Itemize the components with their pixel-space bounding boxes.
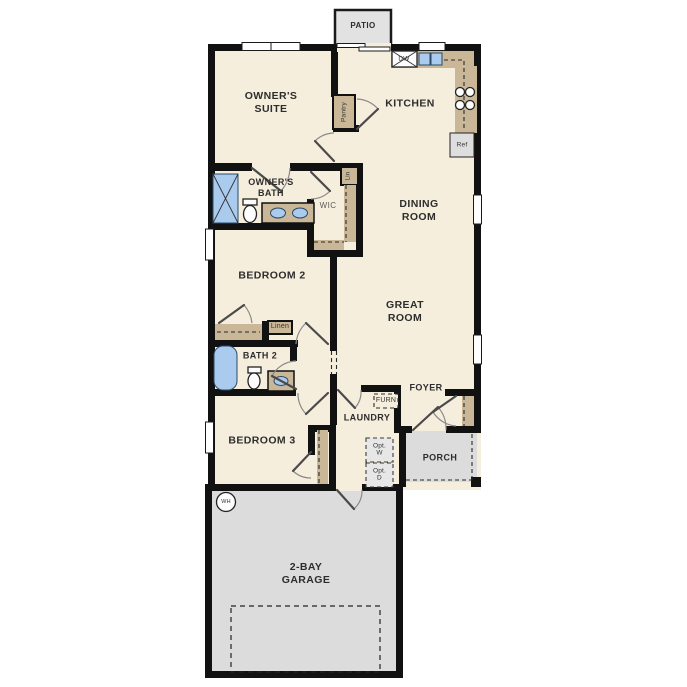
bathtub: [214, 346, 237, 390]
room-label-bedroom2: BEDROOM 2: [238, 269, 305, 282]
fixture-label-refrigerator: Ref: [457, 141, 468, 148]
fixture-label-opt-washer: Opt. W: [373, 443, 386, 458]
room-label-foyer: FOYER: [409, 382, 442, 393]
fixture-label-pantry: Pantry: [340, 102, 347, 122]
bath2-toilet: [248, 367, 261, 389]
dining-window: [474, 195, 482, 224]
patio-sliding-door: [337, 43, 391, 52]
bedroom3-closet-shelf: [317, 430, 328, 484]
room-label-bedroom3: BEDROOM 3: [228, 434, 295, 447]
room-label-garage: 2-BAY GARAGE: [282, 561, 331, 587]
fixture-label-lin: Lin: [346, 172, 353, 181]
fixture-label-water-heater: WH: [221, 499, 231, 505]
kitchen-window: [419, 43, 445, 51]
owners-suite-window-right: [271, 43, 300, 51]
room-label-patio: PATIO: [350, 21, 375, 31]
room-label-wic: WIC: [320, 201, 337, 211]
foyer-closet-shelf: [462, 396, 474, 426]
room-label-laundry: LAUNDRY: [344, 412, 390, 423]
room-label-dining: DINING ROOM: [399, 198, 438, 224]
room-label-kitchen: KITCHEN: [385, 97, 434, 110]
owners-shower: [213, 174, 238, 223]
fixture-label-linen: Linen: [271, 323, 289, 331]
bedroom3-window: [206, 422, 214, 453]
room-label-porch: PORCH: [423, 452, 458, 463]
room-label-owners-bath: OWNER'S BATH: [248, 177, 293, 200]
owners-suite-window-left: [242, 43, 271, 51]
fixture-label-furnace: FURN: [376, 397, 396, 405]
room-label-owners-suite: OWNER'S SUITE: [245, 90, 298, 116]
bedroom2-closet-shelf: [215, 324, 262, 340]
owners-vanity: [262, 203, 314, 223]
owners-toilet: [243, 199, 257, 223]
bedroom2-window: [206, 229, 214, 260]
great-room-window: [474, 335, 482, 364]
kitchen-sink: [419, 53, 442, 65]
fixture-label-opt-dryer: Opt. D: [373, 468, 386, 483]
floor-plan: PATIO OWNER'S SUITE KITCHEN OWNER'S BATH…: [0, 0, 687, 687]
garage-entry-gap: [336, 484, 362, 491]
room-label-bath2: BATH 2: [243, 350, 277, 361]
fixture-label-dishwasher: DW: [398, 55, 409, 62]
room-label-great-room: GREAT ROOM: [386, 299, 424, 325]
cased-opening: [330, 351, 337, 374]
